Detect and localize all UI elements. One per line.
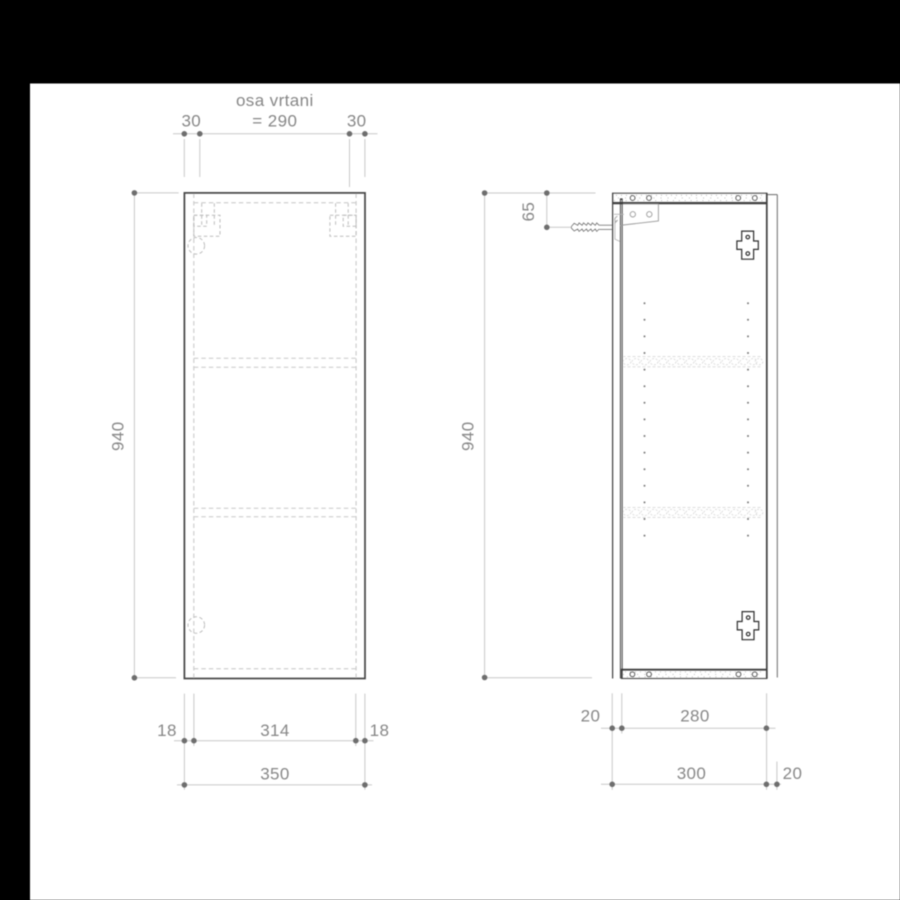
svg-text:65: 65 (519, 202, 538, 222)
svg-text:20: 20 (581, 707, 601, 726)
svg-text:30: 30 (347, 112, 367, 131)
svg-text:18: 18 (157, 721, 177, 740)
svg-text:20: 20 (783, 764, 803, 783)
svg-text:300: 300 (677, 764, 707, 783)
svg-text:18: 18 (370, 721, 390, 740)
svg-text:280: 280 (680, 707, 710, 726)
svg-text:314: 314 (260, 721, 290, 740)
svg-text:30: 30 (181, 112, 201, 131)
svg-text:osa vrtani: osa vrtani (236, 91, 314, 110)
svg-text:350: 350 (260, 764, 290, 783)
svg-text:= 290: = 290 (252, 112, 297, 131)
svg-text:940: 940 (459, 421, 478, 451)
svg-text:940: 940 (109, 421, 128, 451)
